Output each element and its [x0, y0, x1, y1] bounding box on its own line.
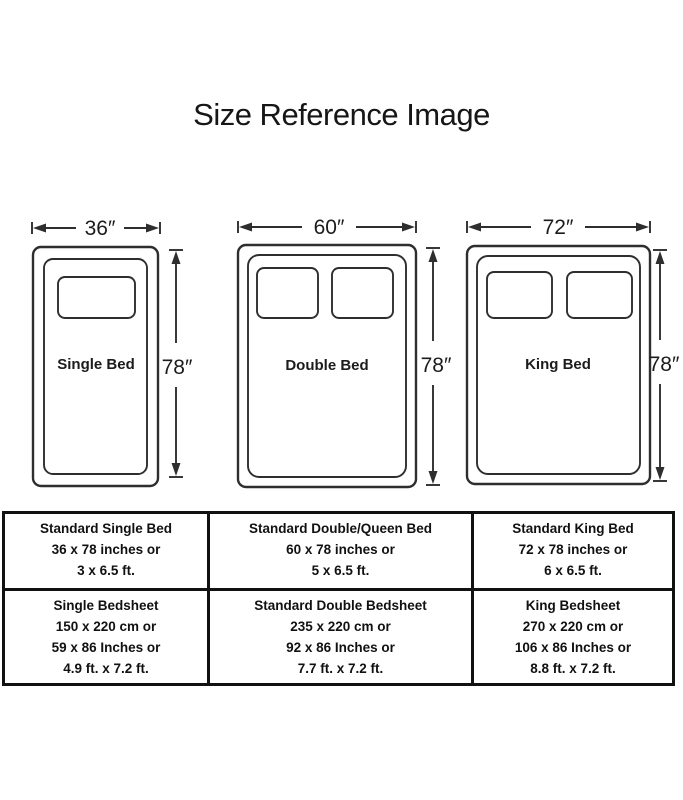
cell-line: Standard Single Bed — [7, 518, 205, 539]
width-dimension-arrow: 72″ — [467, 216, 650, 239]
cell-line: 5 x 6.5 ft. — [212, 560, 469, 581]
pillow-icon — [487, 272, 552, 318]
cell-single-bedsheet: Single Bedsheet 150 x 220 cm or 59 x 86 … — [4, 590, 209, 685]
height-dimension-arrow: 78″ — [162, 250, 193, 477]
diagram-single-bed: 36″ Single Bed 78″ — [26, 210, 226, 495]
width-label: 60″ — [314, 216, 345, 239]
cell-king-bedsheet: King Bedsheet 270 x 220 cm or 106 x 86 I… — [473, 590, 674, 685]
cell-line: 6 x 6.5 ft. — [476, 560, 670, 581]
height-dimension-arrow: 78″ — [421, 248, 452, 485]
cell-standard-king-bed: Standard King Bed 72 x 78 inches or 6 x … — [473, 513, 674, 590]
width-dimension-arrow: 60″ — [238, 216, 416, 239]
cell-line: 8.8 ft. x 7.2 ft. — [476, 658, 670, 679]
size-table: Standard Single Bed 36 x 78 inches or 3 … — [2, 511, 675, 686]
cell-line: 60 x 78 inches or — [212, 539, 469, 560]
cell-line: 92 x 86 Inches or — [212, 637, 469, 658]
pillow-icon — [257, 268, 318, 318]
height-label: 78″ — [421, 354, 452, 377]
cell-line: Single Bedsheet — [7, 595, 205, 616]
cell-line: Standard Double/Queen Bed — [212, 518, 469, 539]
cell-standard-double-queen-bed: Standard Double/Queen Bed 60 x 78 inches… — [209, 513, 473, 590]
cell-line: 235 x 220 cm or — [212, 616, 469, 637]
cell-line: King Bedsheet — [476, 595, 670, 616]
pillow-icon — [332, 268, 393, 318]
pillow-icon — [58, 277, 135, 318]
page-title: Size Reference Image — [0, 97, 683, 133]
width-label: 36″ — [85, 217, 116, 240]
cell-line: 7.7 ft. x 7.2 ft. — [212, 658, 469, 679]
diagram-double-bed: 60″ Double Bed 78″ — [228, 210, 463, 495]
height-label: 78″ — [649, 353, 680, 376]
height-dimension-arrow: 78″ — [649, 250, 680, 481]
cell-standard-double-bedsheet: Standard Double Bedsheet 235 x 220 cm or… — [209, 590, 473, 685]
cell-line: 59 x 86 Inches or — [7, 637, 205, 658]
cell-line: 150 x 220 cm or — [7, 616, 205, 637]
width-label: 72″ — [543, 216, 574, 239]
bed-name-label: Single Bed — [57, 356, 135, 373]
cell-line: 270 x 220 cm or — [476, 616, 670, 637]
cell-standard-single-bed: Standard Single Bed 36 x 78 inches or 3 … — [4, 513, 209, 590]
pillow-icon — [567, 272, 632, 318]
cell-line: 36 x 78 inches or — [7, 539, 205, 560]
cell-line: 4.9 ft. x 7.2 ft. — [7, 658, 205, 679]
height-label: 78″ — [162, 356, 193, 379]
size-reference-page: Size Reference Image 36″ Single Bed 78″ — [0, 0, 683, 800]
bed-name-label: King Bed — [525, 356, 591, 373]
cell-line: 72 x 78 inches or — [476, 539, 670, 560]
bed-name-label: Double Bed — [285, 357, 368, 374]
cell-line: Standard Double Bedsheet — [212, 595, 469, 616]
table-row: Single Bedsheet 150 x 220 cm or 59 x 86 … — [4, 590, 674, 685]
cell-line: 106 x 86 Inches or — [476, 637, 670, 658]
cell-line: 3 x 6.5 ft. — [7, 560, 205, 581]
cell-line: Standard King Bed — [476, 518, 670, 539]
diagram-king-bed: 72″ King Bed 78″ — [458, 210, 683, 495]
width-dimension-arrow: 36″ — [32, 217, 160, 240]
table-row: Standard Single Bed 36 x 78 inches or 3 … — [4, 513, 674, 590]
